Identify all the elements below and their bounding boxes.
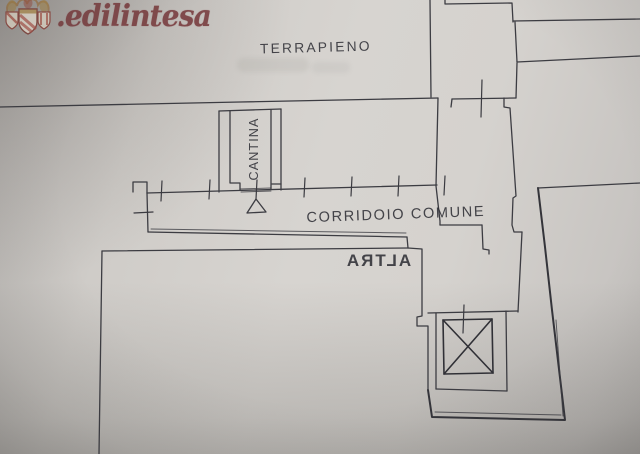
survey-tick-marks [134,80,482,213]
label-cantina: CANTINA [247,118,261,181]
door-swing-icon [247,180,266,213]
label-corridoio-comune: CORRIDOIO COMUNE [306,204,485,226]
wall-lines [0,0,640,454]
floorplan-drawing: TERRAPIENO CANTINA CORRIDOIO COMUNE ALTR… [0,0,640,454]
heraldic-crest-icon [2,0,54,41]
logo-brand-text: .edilintesa [56,0,211,37]
label-terrapieno: TERRAPIENO [260,39,372,57]
elevator-icon [443,305,493,374]
ghost-bleedthrough-text: ALTRA [345,251,411,270]
floorplan-photo: TERRAPIENO CANTINA CORRIDOIO COMUNE ALTR… [0,0,640,454]
edilintesa-logo: .edilintesa [2,0,221,41]
